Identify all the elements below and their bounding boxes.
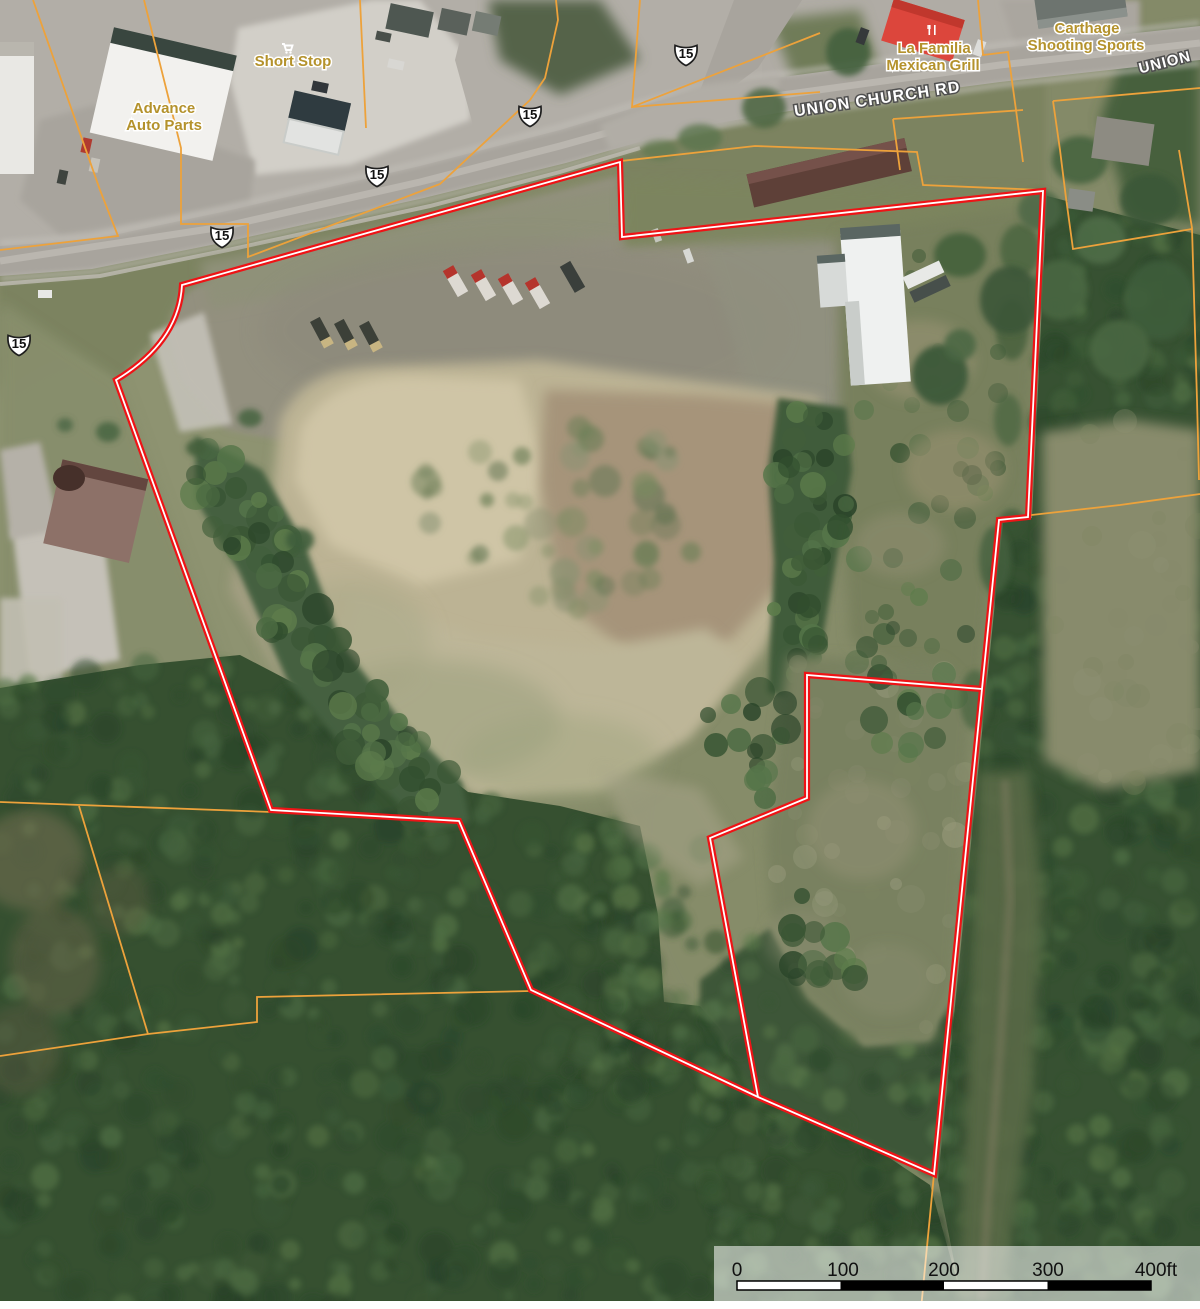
svg-text:15: 15	[523, 107, 538, 122]
svg-text:La Familia: La Familia	[897, 40, 971, 57]
svg-text:Auto Parts: Auto Parts	[126, 117, 202, 134]
svg-text:Carthage: Carthage	[1054, 20, 1119, 37]
svg-text:15: 15	[370, 167, 385, 182]
svg-text:15: 15	[12, 336, 27, 351]
svg-text:Short Stop: Short Stop	[255, 53, 332, 70]
svg-text:15: 15	[215, 228, 230, 243]
svg-text:Shooting Sports: Shooting Sports	[1028, 37, 1145, 54]
svg-text:100: 100	[827, 1260, 859, 1281]
svg-text:400ft: 400ft	[1135, 1260, 1178, 1281]
svg-text:200: 200	[928, 1260, 960, 1281]
svg-text:Advance: Advance	[133, 100, 196, 117]
svg-text:Mexican Grill: Mexican Grill	[886, 57, 979, 74]
svg-text:15: 15	[679, 46, 694, 61]
svg-text:0: 0	[732, 1260, 743, 1281]
svg-text:300: 300	[1032, 1260, 1064, 1281]
